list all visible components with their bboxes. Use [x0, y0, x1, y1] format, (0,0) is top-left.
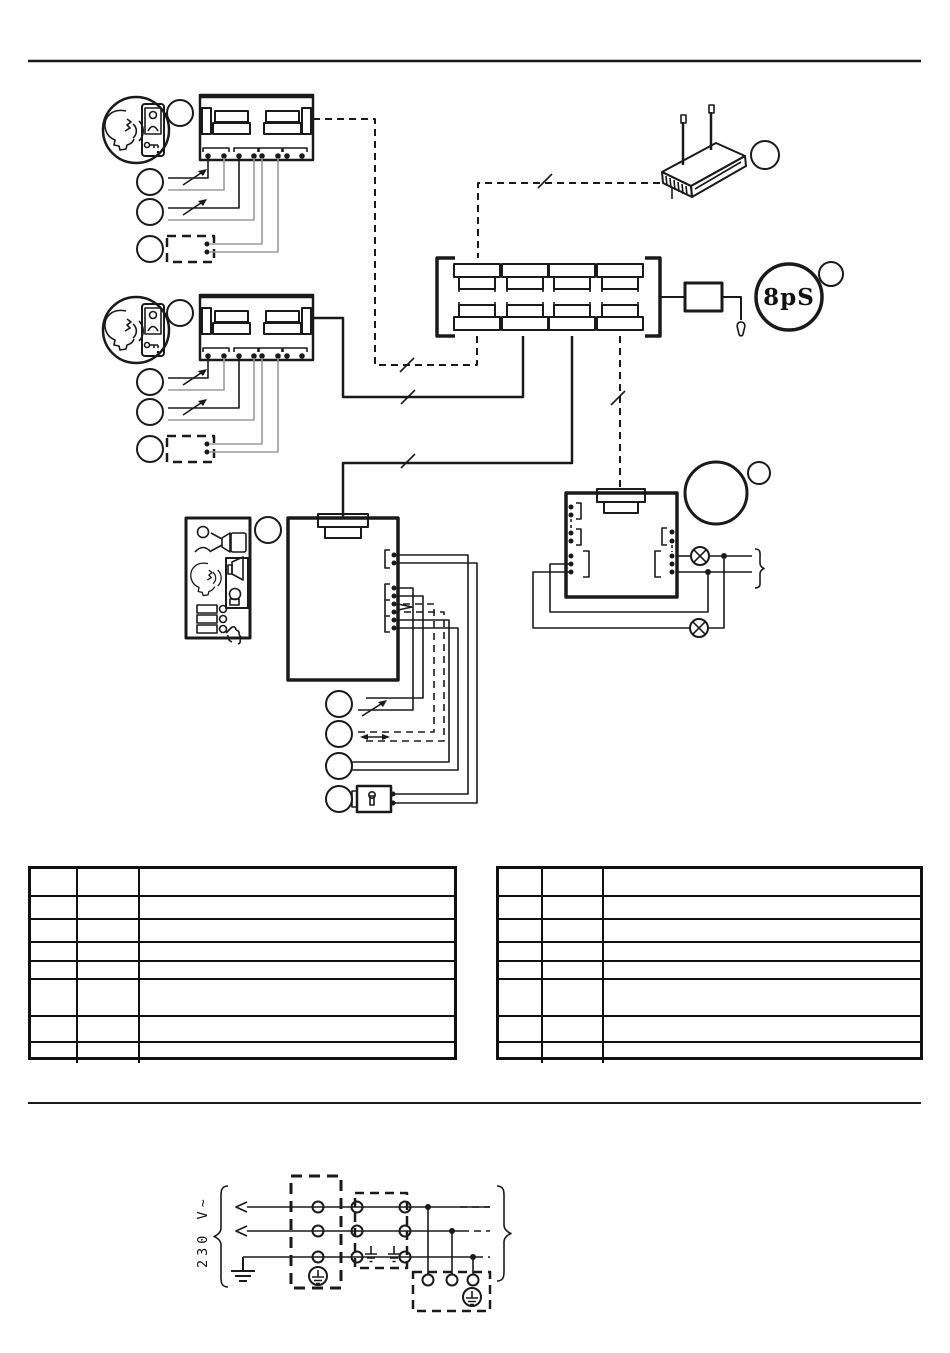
table-cell — [543, 962, 604, 978]
table-row — [499, 943, 920, 962]
mains-brace-right — [497, 1186, 511, 1281]
table-cell — [78, 1017, 140, 1041]
parts-table-right — [496, 866, 923, 1060]
table-cell — [604, 897, 920, 918]
callout-circle — [326, 691, 352, 717]
table-row — [31, 1017, 454, 1043]
table-cell — [499, 1017, 543, 1041]
table-row — [499, 1017, 920, 1043]
switch-label: 8pS — [763, 284, 815, 311]
table-cell — [499, 1043, 543, 1063]
mains-arrow-icon — [236, 1226, 247, 1236]
table-cell — [140, 897, 454, 918]
callout-circle — [751, 141, 779, 169]
table-cell — [543, 869, 604, 895]
callout-circle — [326, 753, 352, 779]
table-cell — [78, 962, 140, 978]
table-row — [31, 869, 454, 897]
table-cell — [604, 943, 920, 960]
table-cell — [140, 1043, 454, 1063]
table-cell — [543, 897, 604, 918]
mains-voltage-label: 230 V~ — [195, 1195, 211, 1268]
callout-circle — [685, 462, 747, 524]
network-switch-8ps: 8pS — [437, 258, 843, 336]
table-row — [31, 1043, 454, 1063]
junction-box — [291, 1176, 341, 1288]
bus-cable — [343, 336, 572, 518]
table-row — [499, 962, 920, 980]
table-cell — [140, 962, 454, 978]
manual-page: 8pS — [0, 0, 950, 1353]
table-cell — [604, 1017, 920, 1041]
camera-view-icon — [195, 527, 246, 553]
table-cell — [604, 869, 920, 895]
table-cell — [604, 980, 920, 1015]
table-cell — [31, 869, 78, 895]
mains-brace-left — [214, 1186, 228, 1287]
cable-marker — [400, 358, 414, 372]
table-cell — [140, 943, 454, 960]
table-cell — [499, 962, 543, 978]
handset-monitor-unit-2 — [103, 295, 523, 462]
wifi-router — [478, 105, 779, 258]
table-cell — [31, 897, 78, 918]
table-cell — [140, 920, 454, 941]
table-row — [499, 869, 920, 897]
table-cell — [78, 943, 140, 960]
table-row — [31, 943, 454, 962]
bus-cable-dashed — [313, 119, 477, 365]
table-cell — [499, 920, 543, 941]
table-row — [31, 920, 454, 943]
audio-intercom-icon — [191, 557, 248, 608]
wiring-diagram: 8pS — [0, 0, 950, 1353]
table-cell — [31, 943, 78, 960]
table-cell — [31, 1017, 78, 1041]
table-row — [499, 980, 920, 1017]
table-cell — [78, 920, 140, 941]
table-row — [31, 897, 454, 920]
mains-power-circuit: 230 V~ — [195, 1176, 511, 1311]
callout-circle — [748, 462, 770, 484]
table-cell — [78, 897, 140, 918]
table-cell — [31, 980, 78, 1015]
table-cell — [499, 980, 543, 1015]
table-cell — [31, 920, 78, 941]
door-station — [186, 336, 572, 812]
screw-terminal — [468, 1275, 479, 1286]
table-row — [31, 962, 454, 980]
cable-marker — [611, 391, 625, 405]
plain-wire-pair — [352, 620, 458, 770]
antenna-tip — [709, 105, 714, 113]
relay-body — [566, 493, 677, 597]
door-pushbutton — [358, 588, 423, 716]
earth-terminal-icon — [463, 1288, 481, 1306]
table-cell — [499, 943, 543, 960]
table-row — [499, 920, 920, 943]
table-cell — [499, 897, 543, 918]
panel-bracket-right — [645, 258, 660, 336]
table-cell — [78, 1043, 140, 1063]
power-supply-box — [685, 283, 722, 311]
power-plug-icon — [737, 322, 745, 336]
table-cell — [140, 980, 454, 1015]
relay-module — [533, 336, 770, 637]
door-sensor-dashed — [358, 604, 444, 741]
table-cell — [31, 1043, 78, 1063]
relay-terminals — [569, 503, 675, 577]
cable-marker — [538, 174, 552, 188]
table-cell — [499, 869, 543, 895]
callout-circle — [255, 517, 281, 543]
table-cell — [543, 1043, 604, 1063]
screw-terminal — [423, 1275, 434, 1286]
panel-bracket-left — [437, 258, 455, 336]
mains-arrow-icon — [236, 1202, 247, 1212]
parts-table-left — [28, 866, 457, 1060]
antenna-tip — [681, 115, 686, 123]
table-cell — [543, 943, 604, 960]
callout-circle — [819, 262, 843, 286]
handset-monitor-unit-1 — [103, 95, 477, 372]
table-cell — [78, 980, 140, 1015]
earth-ground-icon — [231, 1257, 255, 1281]
earth-ground-icon — [365, 1246, 400, 1262]
table-row — [31, 980, 454, 1017]
cable-brace — [755, 549, 764, 588]
entrance-panel-icon-card — [186, 518, 250, 644]
table-row — [499, 1043, 920, 1063]
lan-cable-dashed — [478, 183, 660, 258]
table-cell — [543, 920, 604, 941]
table-cell — [543, 1017, 604, 1041]
callout-circle — [326, 721, 352, 747]
cable-marker — [401, 454, 415, 468]
table-cell — [604, 1043, 920, 1063]
table-cell — [604, 920, 920, 941]
callout-circle — [326, 786, 352, 812]
table-row — [499, 897, 920, 920]
earth-terminal-icon — [309, 1267, 327, 1285]
table-cell — [78, 869, 140, 895]
table-cell — [604, 962, 920, 978]
door-station-body — [288, 518, 398, 680]
screw-terminal — [447, 1275, 458, 1286]
table-cell — [543, 980, 604, 1015]
table-cell — [140, 869, 454, 895]
pressing-hand-icon — [226, 627, 241, 644]
table-cell — [140, 1017, 454, 1041]
table-cell — [31, 962, 78, 978]
